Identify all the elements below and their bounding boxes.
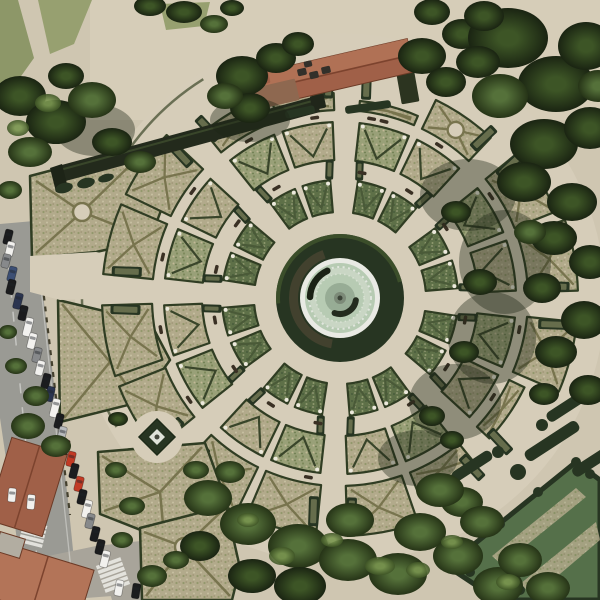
stone-post: [266, 385, 270, 389]
stone-post: [315, 467, 319, 471]
tree-canopy: [547, 183, 597, 221]
central-fountain: [276, 234, 404, 362]
stone-post: [440, 349, 444, 353]
tree-canopy: [416, 473, 464, 507]
tree-canopy: [183, 461, 209, 479]
stone-post: [249, 224, 253, 228]
stone-post: [165, 307, 169, 311]
hedge-block-top: [327, 162, 331, 176]
tree-canopy: [463, 269, 497, 295]
stone-post: [349, 469, 353, 473]
stone-post: [236, 243, 240, 247]
spoke-hedge-block: [355, 160, 364, 180]
car-body: [8, 488, 17, 503]
tree-canopy: [426, 67, 466, 97]
tree-canopy: [119, 497, 145, 515]
stone-post: [326, 182, 330, 186]
stone-post: [272, 202, 276, 206]
tree-canopy: [535, 336, 577, 368]
stone-post: [274, 457, 278, 461]
tree-canopy: [200, 15, 228, 33]
stone-post: [432, 230, 436, 234]
stone-post: [296, 403, 300, 407]
stone-post: [304, 186, 308, 190]
spoke-hedge-block: [202, 274, 222, 283]
stone-post: [391, 194, 395, 198]
tree-canopy: [137, 565, 167, 587]
tree-canopy: [456, 46, 500, 78]
car-windshield: [28, 498, 34, 502]
spoke-hedge-block: [325, 159, 334, 179]
stone-post: [448, 262, 452, 266]
stone-post: [184, 217, 188, 221]
tree-canopy: [184, 480, 232, 516]
hedge-blob: [492, 446, 504, 458]
tree-shadow: [409, 364, 501, 440]
parked-car: [131, 583, 141, 599]
stone-post: [350, 410, 354, 414]
tree-canopy: [464, 1, 504, 31]
stone-post: [404, 390, 408, 394]
tree-canopy: [440, 431, 464, 449]
hedge-blob: [536, 419, 548, 431]
tree-canopy-highlight: [35, 94, 61, 112]
spoke-hedge-block: [201, 304, 221, 313]
tree-canopy-highlight: [237, 513, 259, 527]
parked-car: [26, 494, 35, 510]
car-body: [131, 583, 141, 599]
stone-post: [380, 189, 384, 193]
satellite-image: [0, 0, 600, 600]
tree-canopy: [282, 32, 314, 56]
tree-canopy: [215, 461, 245, 483]
hedge-block-top: [115, 268, 139, 275]
stone-post: [233, 159, 237, 163]
tree-canopy: [497, 162, 551, 202]
tree-canopy: [23, 386, 49, 406]
tree-canopy: [523, 273, 561, 303]
stone-post: [327, 123, 331, 127]
tree-canopy: [514, 220, 546, 244]
stone-post: [244, 362, 248, 366]
tree-canopy-highlight: [496, 574, 520, 590]
stone-post: [259, 450, 263, 454]
tree-canopy: [8, 137, 52, 167]
hedge-block-top: [348, 419, 352, 433]
stone-post: [285, 131, 289, 135]
stone-post: [201, 401, 205, 405]
tree-canopy: [11, 413, 45, 439]
stone-post: [233, 342, 237, 346]
stone-post: [417, 142, 421, 146]
parterre-circle: [73, 203, 91, 221]
stone-post: [177, 232, 181, 236]
car-body: [26, 494, 35, 510]
tree-canopy: [419, 406, 445, 426]
stone-post: [179, 364, 183, 368]
stone-post: [318, 409, 322, 413]
stone-post: [372, 406, 376, 410]
tree-canopy: [48, 63, 84, 89]
stone-post: [208, 182, 212, 186]
stone-post: [402, 135, 406, 139]
tree-canopy: [220, 0, 244, 16]
spoke-hedge-block: [316, 415, 325, 435]
tree-canopy: [529, 383, 559, 405]
stone-post: [167, 273, 171, 277]
tree-canopy-highlight: [441, 535, 463, 549]
fountain-center: [155, 435, 160, 440]
hedge-block-top: [113, 306, 137, 313]
stone-post: [292, 191, 296, 195]
stone-post: [224, 308, 228, 312]
tree-canopy: [111, 532, 133, 548]
stone-post: [173, 349, 177, 353]
tree-canopy-highlight: [321, 533, 343, 547]
stone-post: [231, 254, 235, 258]
tree-canopy: [105, 462, 127, 478]
tree-canopy: [166, 1, 202, 23]
stone-post: [358, 183, 362, 187]
tree-canopy: [41, 435, 71, 457]
satellite-map-viewport[interactable]: [0, 0, 600, 600]
tree-canopy: [68, 82, 116, 118]
hedge-block-top: [204, 306, 218, 310]
car-windshield: [9, 491, 15, 495]
bed-circle: [448, 122, 464, 138]
hedge-block-top: [310, 499, 317, 523]
tree-canopy: [441, 201, 471, 223]
stone-post: [228, 330, 232, 334]
stone-post: [361, 125, 365, 129]
stone-post: [225, 276, 229, 280]
tree-canopy-highlight: [269, 547, 295, 565]
tree-canopy: [326, 503, 374, 537]
fountain-statue: [338, 296, 343, 301]
stone-post: [410, 207, 414, 211]
tree-canopy-highlight: [406, 562, 430, 578]
tree-canopy: [163, 551, 189, 569]
tree-canopy-highlight: [365, 557, 395, 575]
tree-canopy: [92, 128, 132, 156]
spoke-hedge-block: [110, 304, 140, 315]
tree-canopy-highlight: [7, 120, 29, 136]
tree-canopy: [414, 0, 450, 25]
tree-canopy: [124, 151, 156, 173]
spoke-hedge-block: [112, 266, 142, 277]
spoke-hedge-block: [346, 416, 355, 436]
tree-canopy: [207, 83, 243, 109]
hedge-block-top: [357, 164, 361, 178]
tree-canopy: [472, 74, 528, 118]
stone-post: [452, 284, 456, 288]
spoke-hedge-block: [308, 496, 319, 526]
stone-post: [384, 401, 388, 405]
hedge-block-top: [318, 418, 322, 432]
tree-canopy: [108, 412, 128, 426]
tree-canopy: [449, 341, 479, 363]
hedge-block-top: [206, 276, 220, 280]
tree-canopy: [228, 559, 276, 593]
hedge-blob: [510, 464, 526, 480]
parked-car: [8, 488, 17, 503]
stone-post: [285, 398, 289, 402]
stone-post: [443, 250, 447, 254]
tree-canopy: [5, 358, 27, 374]
tree-canopy: [498, 543, 542, 577]
stone-post: [224, 426, 228, 430]
hedge-bump: [533, 487, 543, 497]
tree-canopy: [460, 506, 504, 538]
diamond-fountain: [131, 411, 183, 463]
